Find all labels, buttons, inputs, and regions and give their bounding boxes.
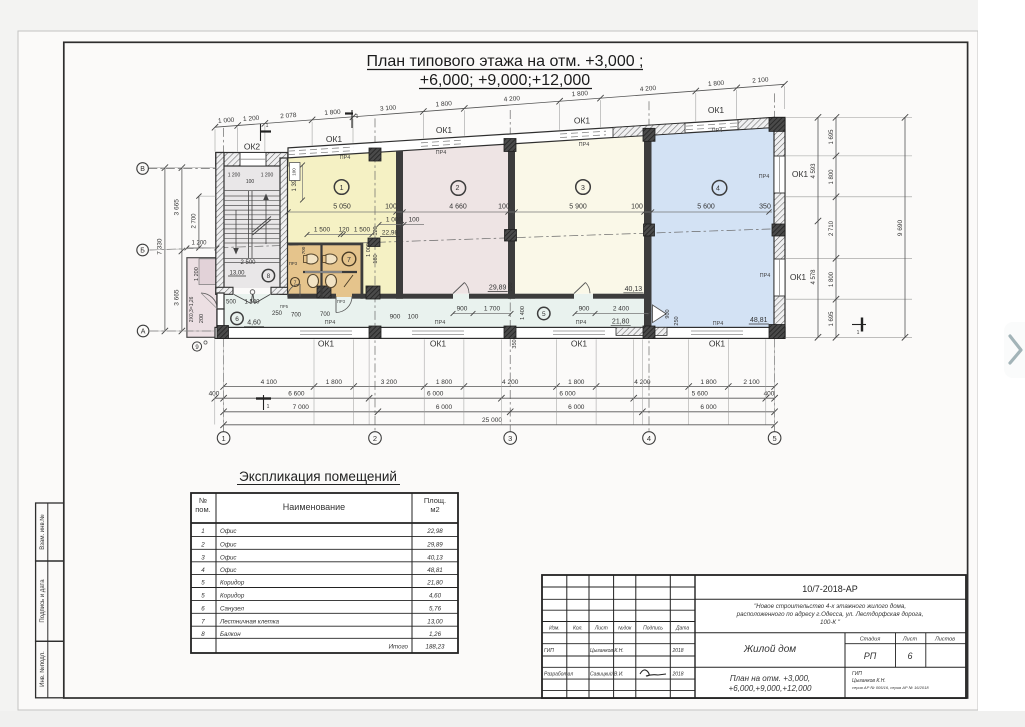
svg-text:5,76: 5,76 [429, 605, 442, 612]
svg-text:188,23: 188,23 [426, 644, 445, 651]
svg-text:Санузел: Санузел [220, 605, 245, 612]
svg-text:8: 8 [267, 273, 271, 280]
svg-text:4 200: 4 200 [640, 85, 657, 93]
svg-text:1 200: 1 200 [261, 173, 274, 179]
svg-text:1: 1 [222, 434, 226, 443]
svg-text:13,00: 13,00 [229, 271, 245, 277]
svg-text:План типового этажа на отм. +3: План типового этажа на отм. +3,000 ; [366, 53, 643, 70]
svg-text:100: 100 [508, 282, 514, 291]
svg-text:4: 4 [716, 185, 720, 192]
svg-text:2 700: 2 700 [192, 213, 198, 229]
svg-text:7: 7 [201, 618, 205, 625]
svg-text:2 400: 2 400 [613, 306, 630, 313]
svg-text:7: 7 [347, 257, 351, 264]
svg-text:ПР4: ПР4 [436, 150, 447, 156]
svg-text:ПР4: ПР4 [325, 320, 336, 326]
svg-text:4 578: 4 578 [811, 269, 817, 285]
svg-text:5 600: 5 600 [697, 204, 715, 211]
svg-text:ОК1: ОК1 [790, 272, 807, 282]
svg-text:Жилой дом: Жилой дом [743, 644, 796, 655]
svg-text:Цыганков К.Н.: Цыганков К.Н. [852, 678, 886, 684]
svg-text:5: 5 [773, 434, 777, 443]
svg-text:900: 900 [390, 314, 401, 321]
svg-text:1 500: 1 500 [354, 227, 371, 234]
svg-text:ПР5: ПР5 [280, 304, 289, 309]
svg-text:3 665: 3 665 [174, 199, 181, 216]
svg-text:29,89: 29,89 [426, 541, 443, 548]
svg-text:5: 5 [542, 311, 546, 318]
svg-text:5 600: 5 600 [692, 391, 709, 398]
svg-text:22,98: 22,98 [382, 230, 399, 237]
svg-text:План на отм. +3,000,: План на отм. +3,000, [730, 674, 810, 683]
svg-text:ОК1: ОК1 [571, 339, 588, 349]
svg-text:Коридор: Коридор [220, 593, 245, 600]
svg-text:2 500: 2 500 [240, 260, 256, 266]
svg-text:ПР4: ПР4 [576, 320, 587, 326]
svg-text:1 400: 1 400 [520, 306, 526, 320]
svg-text:Офис: Офис [220, 528, 237, 535]
svg-text:Инв. №подл.: Инв. №подл. [39, 651, 46, 687]
svg-text:Изм.: Изм. [549, 626, 560, 632]
svg-text:3 665: 3 665 [174, 289, 181, 306]
svg-text:Лист: Лист [594, 626, 608, 632]
svg-text:Офис: Офис [220, 554, 237, 561]
svg-text:1: 1 [340, 185, 344, 192]
svg-text:1: 1 [267, 404, 270, 410]
svg-text:120: 120 [373, 226, 379, 235]
svg-text:Наименование: Наименование [283, 502, 345, 512]
svg-text:200: 200 [199, 314, 205, 323]
svg-text:700: 700 [320, 312, 331, 318]
svg-text:ОК1: ОК1 [436, 125, 453, 135]
svg-text:Взам. инв.№: Взам. инв.№ [39, 514, 46, 550]
svg-text:2: 2 [373, 434, 377, 443]
svg-text:6: 6 [201, 605, 205, 612]
svg-text:Офис: Офис [220, 541, 237, 548]
svg-text:48,81: 48,81 [427, 567, 442, 574]
svg-text:6 000: 6 000 [427, 391, 444, 398]
svg-text:Подпись: Подпись [643, 626, 663, 632]
svg-text:В: В [140, 166, 145, 173]
svg-text:4 200: 4 200 [502, 379, 519, 386]
svg-text:100: 100 [246, 179, 255, 185]
svg-text:м2: м2 [430, 505, 439, 514]
svg-text:100: 100 [409, 217, 420, 224]
svg-text:100-К ": 100-К " [820, 619, 841, 626]
svg-text:4: 4 [201, 567, 205, 574]
svg-text:ПР4: ПР4 [579, 142, 590, 148]
svg-text:2: 2 [456, 185, 460, 192]
svg-text:3 100: 3 100 [380, 104, 397, 112]
svg-text:1: 1 [201, 528, 204, 535]
svg-text:1 500: 1 500 [314, 227, 331, 234]
svg-text:1 000: 1 000 [218, 117, 235, 125]
svg-text:100: 100 [631, 204, 643, 211]
svg-text:350: 350 [512, 339, 518, 348]
svg-text:100: 100 [408, 314, 419, 321]
svg-text:ПР4: ПР4 [713, 321, 724, 327]
svg-text:6 000: 6 000 [700, 404, 717, 411]
svg-text:21,80: 21,80 [426, 580, 443, 587]
svg-text:5 050: 5 050 [333, 204, 351, 211]
svg-text:120: 120 [339, 227, 350, 234]
svg-text:2 078: 2 078 [280, 112, 297, 120]
svg-text:900: 900 [665, 309, 671, 318]
svg-text:250: 250 [272, 311, 283, 317]
svg-text:серия АР № 005/16, серия АР №: серия АР № 005/16, серия АР № 16/2018 [852, 685, 929, 690]
svg-text:6 000: 6 000 [559, 391, 576, 398]
svg-text:"Новое строительство 4-х этажн: "Новое строительство 4-х этажного жилого… [754, 603, 906, 610]
svg-text:3: 3 [581, 185, 585, 192]
svg-text:ОК1: ОК1 [326, 134, 343, 144]
svg-text:Цыганков К.Н.: Цыганков К.Н. [590, 648, 624, 654]
svg-text:пом.: пом. [195, 505, 210, 514]
svg-text:ПР4: ПР4 [759, 174, 770, 180]
svg-text:3: 3 [508, 434, 512, 443]
svg-text:5: 5 [201, 593, 205, 600]
svg-text:1 700: 1 700 [484, 306, 501, 313]
svg-text:900: 900 [579, 306, 590, 313]
svg-text:1 800: 1 800 [435, 100, 452, 108]
svg-text:ОК2: ОК2 [244, 142, 261, 152]
svg-text:расположенного по адресу г.Од: расположенного по адресу г.Одесса, ул. Л… [736, 611, 924, 618]
svg-text:1 200: 1 200 [228, 173, 241, 179]
svg-text:ПР4: ПР4 [435, 320, 446, 326]
svg-text:1 800: 1 800 [436, 379, 453, 386]
svg-text:13,00: 13,00 [427, 618, 443, 625]
svg-text:6 600: 6 600 [288, 391, 305, 398]
svg-text:Листов: Листов [934, 637, 955, 643]
svg-text:7 330: 7 330 [157, 238, 164, 255]
svg-text:25 000: 25 000 [482, 417, 502, 424]
svg-text:21,80: 21,80 [612, 319, 630, 326]
svg-text:+6,000,+9,000,+12,000: +6,000,+9,000,+12,000 [729, 684, 813, 693]
svg-text:№док: №док [618, 626, 632, 632]
svg-text:1,26: 1,26 [429, 631, 442, 638]
svg-text:ПР4: ПР4 [712, 128, 723, 134]
svg-text:4,60: 4,60 [247, 320, 261, 327]
svg-text:1 800: 1 800 [572, 90, 589, 98]
svg-text:1 000: 1 000 [366, 243, 372, 257]
svg-text:1: 1 [356, 114, 359, 120]
svg-text:250: 250 [674, 316, 680, 325]
svg-text:1 800: 1 800 [829, 271, 835, 287]
svg-text:4: 4 [647, 434, 651, 443]
svg-text:8: 8 [201, 631, 205, 638]
svg-text:6 000: 6 000 [568, 404, 585, 411]
svg-text:1 200: 1 200 [191, 240, 207, 246]
svg-text:Б: Б [140, 248, 145, 255]
svg-text:29,89: 29,89 [489, 285, 507, 292]
svg-text:40,13: 40,13 [625, 286, 643, 293]
svg-text:1 800: 1 800 [324, 109, 341, 117]
svg-text:4 100: 4 100 [261, 379, 278, 386]
svg-text:180: 180 [373, 254, 379, 263]
svg-text:100: 100 [292, 168, 297, 176]
svg-text:1: 1 [266, 123, 269, 129]
svg-text:ПР4: ПР4 [760, 273, 771, 279]
svg-text:2: 2 [200, 541, 205, 548]
svg-text:РП: РП [864, 651, 877, 661]
svg-text:6 000: 6 000 [436, 404, 453, 411]
svg-text:Балкон: Балкон [220, 631, 241, 638]
svg-text:1 800: 1 800 [708, 80, 725, 88]
svg-text:40,13: 40,13 [427, 554, 443, 561]
svg-text:ГИП: ГИП [852, 671, 862, 677]
svg-text:1: 1 [857, 330, 860, 336]
svg-text:1 800: 1 800 [700, 379, 717, 386]
svg-text:6: 6 [235, 316, 239, 323]
svg-text:Площ.: Площ. [424, 496, 446, 505]
svg-text:Дата: Дата [675, 626, 689, 632]
svg-text:4 593: 4 593 [811, 163, 817, 179]
svg-text:Подпись и дата: Подпись и дата [40, 579, 46, 623]
svg-text:Савицкий В.И.: Савицкий В.И. [590, 671, 624, 678]
svg-text:ОК1: ОК1 [708, 105, 725, 115]
svg-text:3: 3 [201, 554, 205, 561]
svg-text:4 660: 4 660 [449, 204, 467, 211]
svg-text:700: 700 [301, 246, 306, 254]
svg-text:5 900: 5 900 [569, 204, 587, 211]
svg-text:ОК1: ОК1 [574, 116, 591, 126]
svg-text:100: 100 [498, 204, 510, 211]
svg-text:22,98: 22,98 [426, 528, 443, 535]
svg-text:ОК1: ОК1 [792, 169, 809, 179]
svg-text:400: 400 [764, 391, 775, 398]
svg-text:Коридор: Коридор [220, 580, 245, 587]
svg-text:1 695: 1 695 [829, 311, 835, 327]
svg-text:2 100: 2 100 [752, 76, 769, 84]
svg-text:2 100: 2 100 [743, 379, 760, 386]
svg-text:1 200: 1 200 [194, 267, 200, 281]
svg-text:400: 400 [209, 391, 220, 398]
svg-text:900: 900 [457, 306, 468, 313]
svg-text:Итого: Итого [389, 644, 409, 651]
svg-text:Стадия: Стадия [860, 637, 881, 643]
svg-text:А: А [141, 329, 146, 336]
svg-text:ОК1: ОК1 [430, 339, 447, 349]
svg-text:Офис: Офис [220, 567, 237, 574]
svg-text:6: 6 [907, 651, 912, 661]
svg-text:350: 350 [759, 204, 771, 211]
svg-text:1 800: 1 800 [326, 379, 343, 386]
svg-text:2 710: 2 710 [829, 220, 835, 236]
svg-text:10/7-2018-АР: 10/7-2018-АР [802, 584, 858, 594]
svg-text:5: 5 [201, 580, 205, 587]
svg-text:1 000: 1 000 [386, 217, 403, 224]
svg-text:ОК1: ОК1 [318, 339, 335, 349]
svg-text:+6,000; +9,000;+12,000: +6,000; +9,000;+12,000 [420, 72, 590, 89]
svg-text:7 000: 7 000 [293, 404, 310, 411]
svg-text:700: 700 [291, 313, 302, 319]
svg-text:1 800: 1 800 [568, 379, 585, 386]
svg-text:Кол.: Кол. [573, 626, 583, 632]
svg-text:Экспликация помещений: Экспликация помещений [239, 469, 397, 484]
svg-text:ПР4: ПР4 [340, 155, 351, 161]
svg-text:1 200: 1 200 [243, 115, 260, 123]
svg-text:ГИП: ГИП [544, 648, 554, 654]
svg-text:ОК1: ОК1 [709, 339, 726, 349]
svg-text:48,81: 48,81 [750, 317, 768, 324]
svg-text:Разработал: Разработал [544, 672, 573, 678]
svg-text:1 695: 1 695 [829, 129, 835, 145]
svg-text:2018: 2018 [671, 648, 683, 654]
svg-text:1 500: 1 500 [244, 300, 260, 306]
svg-text:4,60: 4,60 [429, 593, 442, 600]
svg-text:100: 100 [385, 204, 397, 211]
svg-text:№: № [199, 496, 207, 505]
svg-text:9 690: 9 690 [897, 219, 904, 236]
svg-text:ПР3: ПР3 [289, 261, 298, 266]
svg-text:3 200: 3 200 [381, 379, 398, 386]
svg-text:500: 500 [226, 300, 237, 306]
svg-text:2X0,3=1,26: 2X0,3=1,26 [189, 296, 195, 322]
svg-text:4 200: 4 200 [504, 95, 521, 103]
svg-text:2018: 2018 [671, 672, 683, 678]
svg-text:1 800: 1 800 [829, 169, 835, 185]
svg-text:ПР3: ПР3 [337, 299, 346, 304]
svg-text:Лист: Лист [902, 637, 918, 643]
svg-text:Лестничная клетка: Лестничная клетка [219, 618, 280, 625]
